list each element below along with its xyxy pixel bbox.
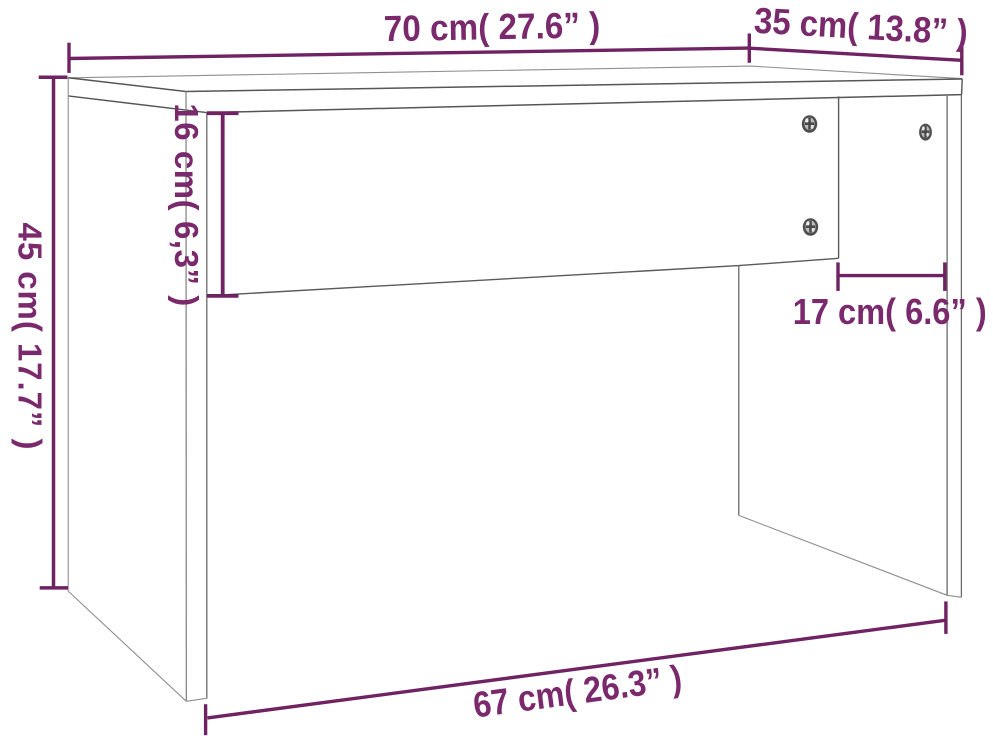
svg-text:70 cm( 27.6” ): 70 cm( 27.6” ) [383,4,600,49]
svg-text:16 cm( 6,3” ): 16 cm( 6,3” ) [168,103,205,306]
svg-text:45 cm( 17.7” ): 45 cm( 17.7” ) [12,223,49,450]
svg-text:17 cm( 6.6” ): 17 cm( 6.6” ) [793,291,987,332]
